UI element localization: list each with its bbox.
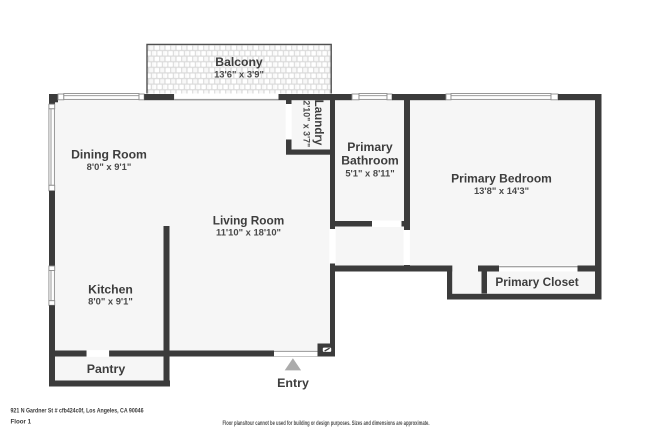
svg-text:8'0" x 9'1": 8'0" x 9'1" [87,161,132,172]
svg-text:Primary: Primary [347,140,393,154]
svg-text:Pantry: Pantry [87,362,126,376]
svg-text:Dining Room: Dining Room [71,148,147,162]
svg-text:2'10" x 3'7": 2'10" x 3'7" [302,100,312,147]
svg-text:13'8" x 14'3": 13'8" x 14'3" [474,185,529,196]
svg-text:Primary Closet: Primary Closet [495,275,578,289]
svg-text:Kitchen: Kitchen [88,283,133,297]
svg-text:5'1" x 8'11": 5'1" x 8'11" [345,167,394,178]
svg-text:Floor plans/tour cannot be use: Floor plans/tour cannot be used for buil… [223,420,430,427]
svg-text:Living Room: Living Room [213,213,284,227]
svg-text:Floor 1: Floor 1 [11,419,32,426]
svg-text:Balcony: Balcony [215,55,263,69]
svg-text:Entry: Entry [277,376,309,390]
svg-text:Primary Bedroom: Primary Bedroom [451,172,552,186]
svg-text:11'10" x 18'10": 11'10" x 18'10" [216,226,281,237]
svg-text:Laundry: Laundry [312,100,325,146]
svg-text:8'0" x 9'1": 8'0" x 9'1" [88,296,133,307]
svg-text:13'6" x 3'9": 13'6" x 3'9" [214,69,264,80]
svg-text:Bathroom: Bathroom [341,153,399,167]
svg-text:921 N Gardner St # cfb424c0f,: 921 N Gardner St # cfb424c0f, Los Angele… [11,408,144,415]
